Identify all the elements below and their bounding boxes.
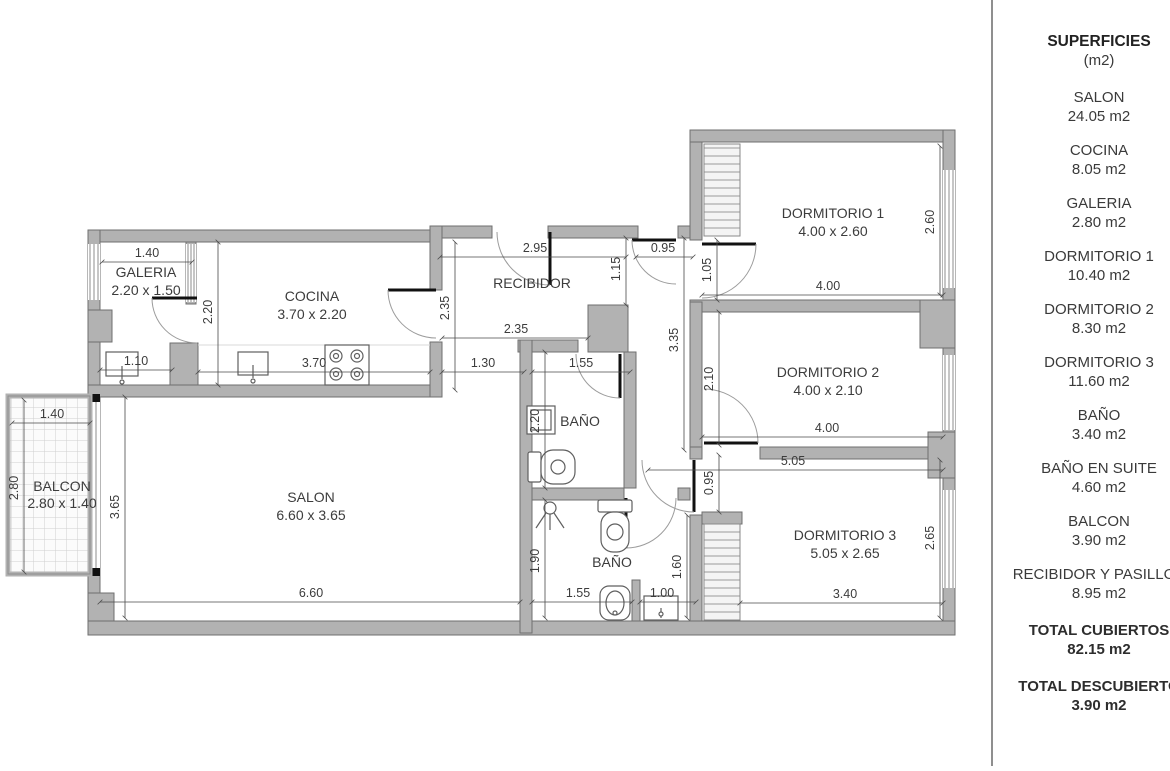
dim-label: 1.40 — [40, 407, 64, 421]
dim-label: 1.05 — [700, 258, 714, 282]
door-cocina — [388, 290, 436, 338]
dim-label: 3.65 — [108, 495, 122, 519]
dim-label: 1.55 — [569, 356, 593, 370]
room-label-dormitorio3: DORMITORIO 3 — [794, 527, 897, 543]
room-name: DORMITORIO 2 — [1009, 300, 1170, 319]
dim-label: 3.40 — [833, 587, 857, 601]
room-name: COCINA — [1009, 141, 1170, 160]
door-dorm2 — [704, 389, 758, 443]
superficies-panel: SUPERFICIES (m2) SALON24.05 m2 COCINA8.0… — [1009, 0, 1170, 766]
room-area: 10.40 m2 — [1009, 266, 1170, 285]
room-area: 3.90 m2 — [1009, 531, 1170, 550]
room-label-balcon: BALCON — [33, 478, 91, 494]
list-item: DORMITORIO 110.40 m2 — [1009, 247, 1170, 285]
room-dims-dormitorio1: 4.00 x 2.60 — [798, 223, 867, 239]
room-label-recibidor: RECIBIDOR — [493, 275, 571, 291]
door-galeria — [152, 298, 197, 343]
panel-title: SUPERFICIES — [1009, 32, 1170, 51]
list-item: DORMITORIO 28.30 m2 — [1009, 300, 1170, 338]
closet-dorm1 — [704, 144, 740, 236]
room-area: 2.80 m2 — [1009, 213, 1170, 232]
list-item: BALCON3.90 m2 — [1009, 512, 1170, 550]
kitchen-sink-icon — [238, 352, 268, 383]
list-item: GALERIA2.80 m2 — [1009, 194, 1170, 232]
dim-label: 6.60 — [299, 586, 323, 600]
room-name: GALERIA — [1009, 194, 1170, 213]
dim-label: 1.15 — [609, 257, 623, 281]
dim-label: 2.10 — [702, 367, 716, 391]
floor-plan: 1.40 2.95 0.95 2.35 3.70 1.30 1.55 1.10 … — [0, 0, 992, 766]
room-area: 11.60 m2 — [1009, 372, 1170, 391]
dim-label: 0.95 — [702, 471, 716, 495]
room-name: DORMITORIO 1 — [1009, 247, 1170, 266]
dim-label: 2.60 — [923, 210, 937, 234]
list-item: COCINA8.05 m2 — [1009, 141, 1170, 179]
dim-label: 4.00 — [816, 279, 840, 293]
room-label-dormitorio2: DORMITORIO 2 — [777, 364, 880, 380]
list-item: RECIBIDOR Y PASILLOS8.95 m2 — [1009, 565, 1170, 603]
dim-label: 0.95 — [651, 241, 675, 255]
panel-subtitle: (m2) — [1009, 51, 1170, 70]
window-dormitorio3 — [943, 490, 955, 588]
floorplan-page: { "sidebar": { "title": "SUPERFICIES", "… — [0, 0, 1170, 766]
closet-dorm3 — [704, 524, 740, 620]
room-dims-balcon: 2.80 x 1.40 — [27, 495, 96, 511]
dim-label: 1.30 — [471, 356, 495, 370]
bano-toilet-icon — [528, 450, 575, 484]
room-label-dormitorio1: DORMITORIO 1 — [782, 205, 885, 221]
room-area: 3.40 m2 — [1009, 425, 1170, 444]
floor-plan-svg: 1.40 2.95 0.95 2.35 3.70 1.30 1.55 1.10 … — [0, 0, 992, 766]
dim-label: 1.90 — [528, 549, 542, 573]
list-item: SALON24.05 m2 — [1009, 88, 1170, 126]
dim-label: 1.55 — [566, 586, 590, 600]
room-name: BALCON — [1009, 512, 1170, 531]
dim-label: 2.35 — [504, 322, 528, 336]
window-dormitorio1 — [943, 170, 955, 288]
panel-divider — [991, 0, 993, 766]
room-area: 8.95 m2 — [1009, 584, 1170, 603]
dim-label: 5.05 — [781, 454, 805, 468]
window-dormitorio2 — [943, 355, 955, 430]
bidet-icon — [600, 586, 630, 620]
room-area: 8.30 m2 — [1009, 319, 1170, 338]
suite-toilet-icon — [598, 500, 632, 552]
list-item: DORMITORIO 311.60 m2 — [1009, 353, 1170, 391]
stove-icon — [325, 345, 369, 385]
dim-label: 2.35 — [438, 296, 452, 320]
room-label-salon: SALON — [287, 489, 334, 505]
dim-label: 1.10 — [124, 354, 148, 368]
room-area: 8.05 m2 — [1009, 160, 1170, 179]
window-galeria-divider — [186, 244, 196, 302]
room-name: DORMITORIO 3 — [1009, 353, 1170, 372]
dim-label: 1.00 — [650, 586, 674, 600]
shower-icon — [536, 502, 564, 530]
room-name: BAÑO EN SUITE — [1009, 459, 1170, 478]
room-label-galeria: GALERIA — [116, 264, 177, 280]
room-dims-galeria: 2.20 x 1.50 — [111, 282, 180, 298]
room-label-cocina: COCINA — [285, 288, 340, 304]
room-label-bano: BAÑO — [560, 413, 600, 429]
dim-label: 1.40 — [135, 246, 159, 260]
dim-label: 2.65 — [923, 526, 937, 550]
dim-label: 3.70 — [302, 356, 326, 370]
room-name: SALON — [1009, 88, 1170, 107]
room-dims-dormitorio3: 5.05 x 2.65 — [810, 545, 879, 561]
total-descubierto: TOTAL DESCUBIERTO3.90 m2 — [1009, 677, 1170, 715]
room-name: RECIBIDOR Y PASILLOS — [1009, 565, 1170, 584]
room-dims-cocina: 3.70 x 2.20 — [277, 306, 346, 322]
window-galeria-left — [88, 244, 100, 300]
room-area: 24.05 m2 — [1009, 107, 1170, 126]
room-name: BAÑO — [1009, 406, 1170, 425]
dim-label: 3.35 — [667, 328, 681, 352]
door-dorm3 — [642, 460, 694, 512]
dim-label: 2.80 — [7, 476, 21, 500]
room-dims-dormitorio2: 4.00 x 2.10 — [793, 382, 862, 398]
dim-label: 1.60 — [670, 555, 684, 579]
dim-label: 4.00 — [815, 421, 839, 435]
list-item: BAÑO EN SUITE4.60 m2 — [1009, 459, 1170, 497]
list-item: BAÑO3.40 m2 — [1009, 406, 1170, 444]
room-label-bano-suite: BAÑO — [592, 554, 632, 570]
dim-label: 2.20 — [201, 300, 215, 324]
room-dims-salon: 6.60 x 3.65 — [276, 507, 345, 523]
total-cubiertos: TOTAL CUBIERTOS82.15 m2 — [1009, 621, 1170, 659]
dim-label: 2.20 — [528, 409, 542, 433]
dim-label: 2.95 — [523, 241, 547, 255]
room-area: 4.60 m2 — [1009, 478, 1170, 497]
